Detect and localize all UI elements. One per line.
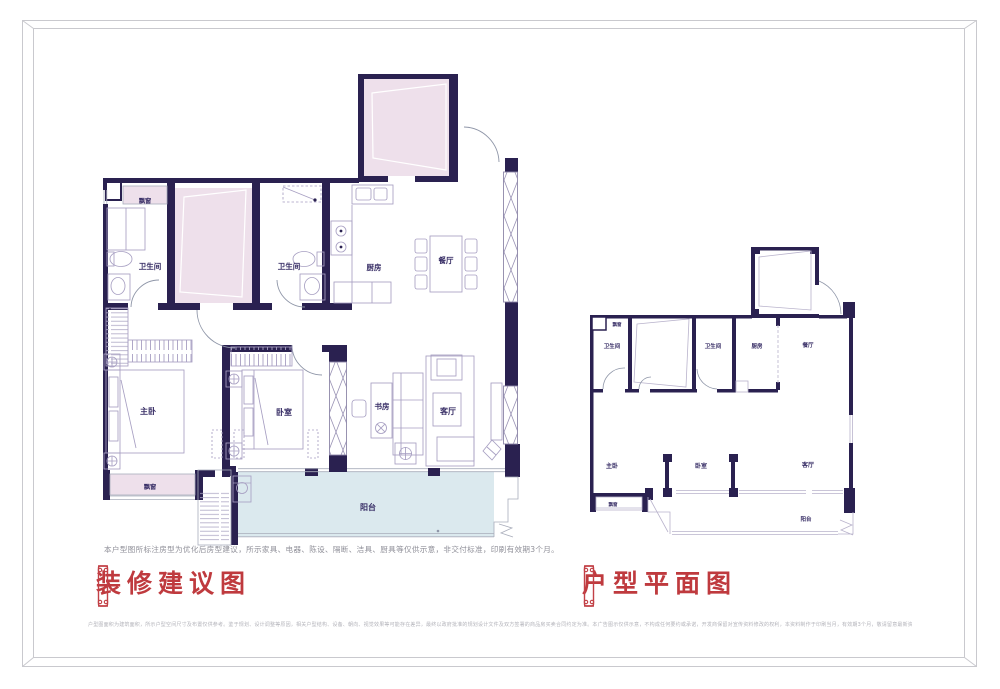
room-label-bay-top: 飘窗 (139, 197, 151, 205)
footer-disclaimer: 户型图面积为建筑面积，所示户型空间尺寸及布置仅供参考。鉴于规划、设计调整等原因，… (88, 621, 912, 628)
left-plan-title-block: 装修建议图 (96, 564, 251, 606)
room-label-bedroom: 卧室 (276, 407, 292, 417)
room-label-living: 客厅 (801, 461, 814, 469)
room-label-bath-2: 卫生间 (278, 261, 301, 271)
brochure-page: 飘窗 卫生间 卫生间 厨房 餐厅 主卧 卧室 书房 客厅 阳台 飘窗 (0, 0, 1000, 689)
right-plan-title-block: 户型平面图 (582, 564, 737, 606)
right-floor-plan: 飘窗 卫生间 卫生间 厨房 餐厅 主卧 卧室 客厅 飘窗 阳台 (590, 247, 855, 535)
right-plan-title: 户型平面图 (582, 564, 737, 606)
room-label-bay-top: 飘窗 (612, 321, 622, 328)
room-label-kitchen: 厨房 (751, 342, 763, 350)
room-label-bay-bottom: 飘窗 (608, 501, 618, 508)
right-plan-lines (596, 251, 853, 535)
room-label-master: 主卧 (140, 406, 156, 416)
title-bracket-right-icon (582, 564, 596, 608)
room-label-study: 书房 (375, 401, 390, 411)
right-plan-doors (603, 281, 841, 389)
left-plan-note: 本户型图所标注房型为优化后房型建议，所示家具、电器、陈设、隔断、洁具、厨具等仅供… (104, 544, 559, 555)
structural-column (106, 182, 121, 200)
room-label-kitchen: 厨房 (367, 262, 382, 272)
room-label-bath-1: 卫生间 (604, 342, 621, 350)
room-label-bath-1: 卫生间 (139, 261, 162, 271)
room-label-balcony: 阳台 (800, 515, 812, 523)
room-label-bedroom: 卧室 (695, 462, 707, 470)
bay-window-box (592, 317, 606, 330)
room-label-bath-2: 卫生间 (705, 342, 722, 350)
left-plan-title: 装修建议图 (96, 564, 251, 606)
right-plan-walls (590, 247, 855, 513)
room-label-dining: 餐厅 (801, 341, 814, 349)
left-floor-plan: 飘窗 卫生间 卫生间 厨房 餐厅 主卧 卧室 书房 客厅 阳台 飘窗 (103, 74, 520, 545)
room-label-master: 主卧 (606, 462, 618, 470)
room-label-bay-bottom: 飘窗 (144, 483, 156, 491)
room-label-living: 客厅 (439, 406, 456, 416)
title-bracket-right-icon (96, 564, 110, 608)
left-plan-window-columns (330, 172, 518, 455)
room-label-dining: 餐厅 (438, 255, 454, 265)
room-label-balcony: 阳台 (360, 502, 376, 512)
